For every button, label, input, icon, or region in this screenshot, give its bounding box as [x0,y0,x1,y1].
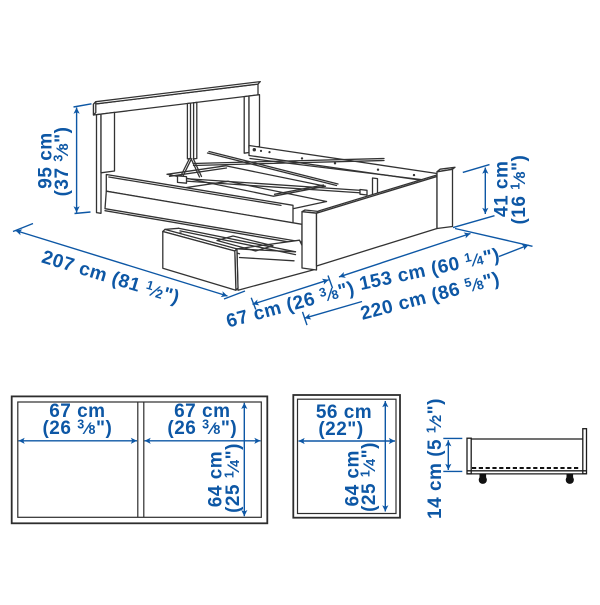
svg-text:(26 3⁄8"): (26 3⁄8") [167,418,237,440]
svg-text:(25 1⁄4"): (25 1⁄4") [222,443,244,513]
svg-text:(16 1⁄8"): (16 1⁄8") [508,155,530,225]
svg-text:14 cm (5 1⁄2"): 14 cm (5 1⁄2") [425,398,447,519]
svg-text:(22"): (22") [318,419,363,440]
svg-text:207 cm (81 1⁄2"): 207 cm (81 1⁄2") [39,246,182,308]
svg-text:(26 3⁄8"): (26 3⁄8") [42,418,112,440]
svg-text:(25 1⁄4"): (25 1⁄4") [359,442,381,512]
svg-text:(37 3⁄8"): (37 3⁄8") [52,127,74,197]
